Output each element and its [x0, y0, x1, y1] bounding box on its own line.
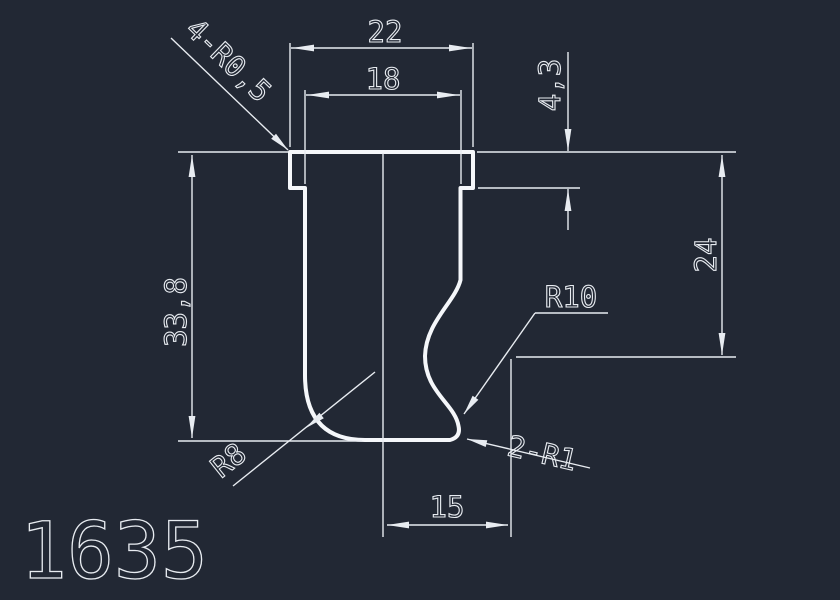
cad-viewport[interactable]: 22 18 4,3 24 33,8 15 4-R0,5 R10 2-R1 R8 …: [0, 0, 840, 600]
arrowhead-22-right: [449, 45, 471, 52]
arrowhead-4-r05: [271, 134, 288, 150]
arrowhead-15-left: [387, 522, 409, 529]
arrowhead-24-down: [719, 333, 726, 355]
arrowhead-33-8-down: [189, 416, 196, 438]
arrowhead-4-3-down: [565, 129, 572, 151]
note-text-r8: R8: [204, 436, 252, 484]
arrowhead-15-right: [486, 522, 508, 529]
arrowhead-24-up: [719, 155, 726, 177]
arrowhead-4-3-up: [565, 189, 572, 211]
note-text-r10: R10: [545, 280, 597, 314]
dim-text-24: 24: [689, 238, 723, 273]
dimension-texts: 22 18 4,3 24 33,8 15 4-R0,5 R10 2-R1 R8: [159, 12, 723, 524]
cad-canvas[interactable]: 22 18 4,3 24 33,8 15 4-R0,5 R10 2-R1 R8 …: [0, 0, 840, 600]
dim-text-22: 22: [368, 15, 403, 49]
dim-text-4-3: 4,3: [533, 59, 567, 111]
arrowhead-18-left: [307, 92, 329, 99]
profile-outline: [290, 152, 473, 440]
arrowhead-22-left: [292, 45, 314, 52]
arrowhead-2-r1: [467, 439, 487, 447]
part-profile: [290, 152, 473, 537]
arrowhead-33-8-up: [189, 155, 196, 177]
part-number: 1635: [20, 507, 208, 597]
arrowhead-r10: [464, 396, 478, 414]
note-text-2-r1: 2-R1: [504, 429, 580, 478]
dim-text-33-8: 33,8: [159, 277, 193, 347]
arrowhead-18-right: [437, 92, 459, 99]
dim-text-18: 18: [366, 62, 401, 96]
dim-text-15: 15: [430, 490, 465, 524]
